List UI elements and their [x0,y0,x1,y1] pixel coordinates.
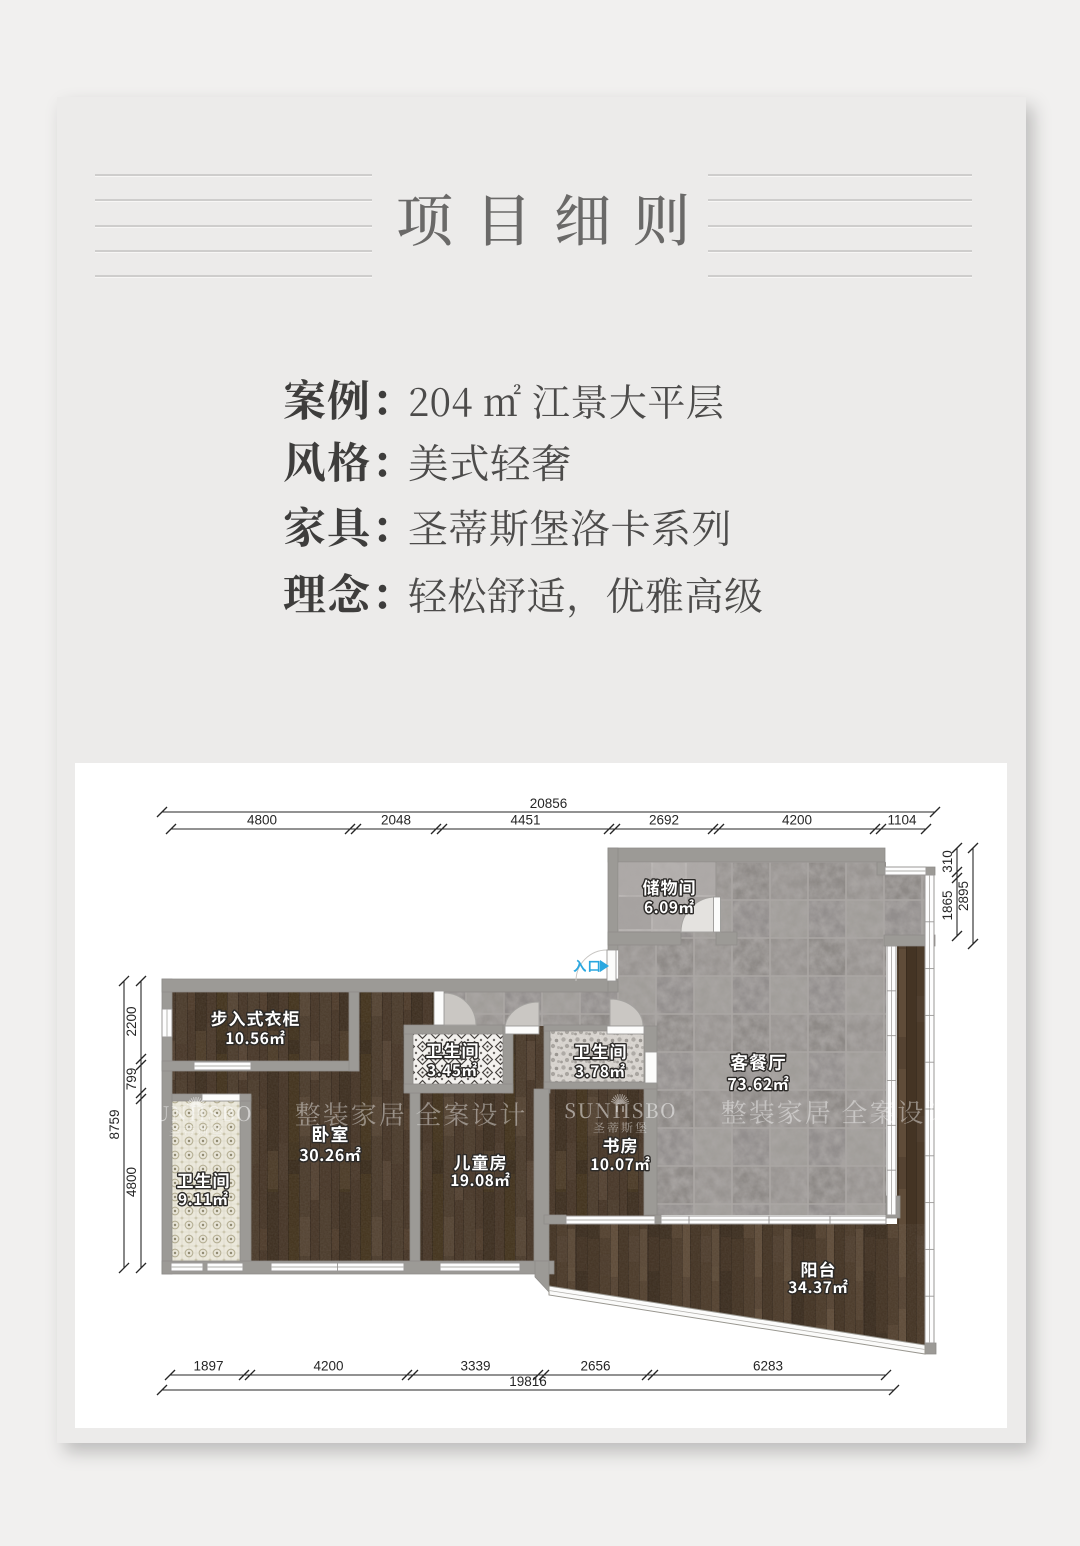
svg-text:4800: 4800 [247,813,277,828]
svg-text:19816: 19816 [509,1374,547,1389]
svg-text:1865: 1865 [940,890,955,920]
svg-text:6283: 6283 [753,1359,783,1374]
svg-text:20856: 20856 [530,796,568,811]
svg-text:310: 310 [940,850,955,873]
svg-text:8759: 8759 [107,1109,122,1139]
svg-text:1104: 1104 [887,813,917,828]
svg-text:2656: 2656 [580,1359,610,1374]
svg-text:2200: 2200 [124,1006,139,1036]
svg-text:2048: 2048 [381,813,411,828]
svg-text:3339: 3339 [460,1359,490,1374]
svg-text:1897: 1897 [193,1359,223,1374]
svg-text:4800: 4800 [124,1167,139,1197]
svg-text:799: 799 [124,1068,139,1091]
svg-text:2692: 2692 [649,813,679,828]
svg-text:4200: 4200 [313,1359,343,1374]
svg-text:4200: 4200 [782,813,812,828]
svg-text:2895: 2895 [956,881,971,911]
svg-text:4451: 4451 [510,813,540,828]
